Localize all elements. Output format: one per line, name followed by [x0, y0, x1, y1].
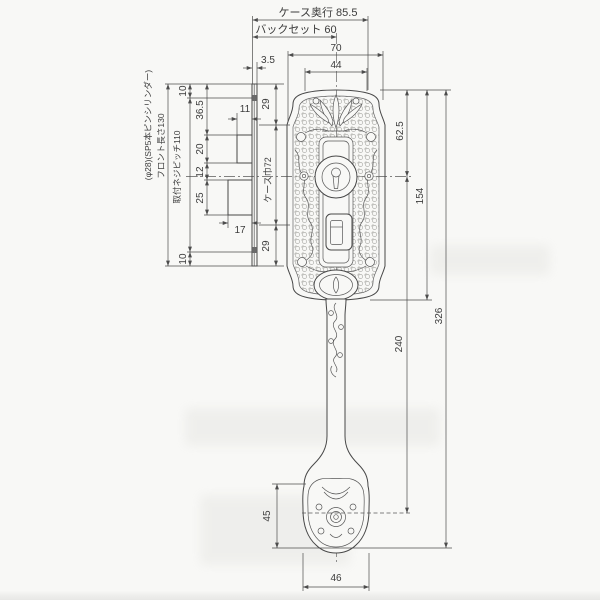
lockset-dimension-drawing: ケース奥行 85.5 バックセット 60 70 44 3.5 11 17 46 … [0, 0, 600, 600]
mounting-screw-right [365, 172, 373, 180]
dead-bolt [228, 180, 252, 215]
cylinder [315, 156, 357, 198]
label-case-width: ケース巾72 [262, 157, 273, 203]
dimension-labels: ケース奥行 85.5 バックセット 60 70 44 3.5 11 17 46 … [143, 5, 445, 584]
label-29-top: 29 [261, 98, 272, 110]
label-backset: バックセット 60 [255, 23, 336, 36]
label-cylinder-note: (φ28)(SP5本ピンシリンダー) [143, 70, 153, 181]
label-326: 326 [434, 307, 445, 324]
faceplate-screw-top [253, 95, 257, 101]
label-62-5: 62.5 [395, 121, 406, 141]
label-240: 240 [394, 335, 405, 352]
faceplate-screw-bottom [253, 247, 257, 253]
label-70: 70 [330, 43, 342, 54]
mounting-screw-left [300, 172, 308, 180]
label-12: 12 [195, 166, 206, 178]
label-case-depth: ケース奥行 85.5 [279, 5, 358, 19]
latch-bolt [237, 135, 252, 163]
label-154: 154 [415, 187, 426, 204]
label-36-5: 36.5 [195, 100, 206, 120]
label-25: 25 [195, 192, 206, 204]
label-20: 20 [195, 143, 206, 155]
label-10-top: 10 [178, 85, 189, 97]
front-view-plate [287, 90, 385, 300]
label-screw-pitch: 取付ネジピッチ110 [172, 130, 182, 203]
label-17: 17 [234, 225, 246, 236]
label-3-5: 3.5 [261, 55, 275, 66]
thumbturn [326, 214, 352, 250]
label-11: 11 [240, 104, 251, 115]
label-46: 46 [330, 573, 342, 584]
label-44: 44 [330, 60, 342, 71]
label-45: 45 [262, 510, 273, 522]
bottom-boss [314, 270, 358, 300]
label-faceplate-length: フロント長さ130 [156, 113, 166, 178]
label-29-bottom: 29 [261, 240, 272, 252]
label-10-bottom: 10 [178, 253, 189, 265]
scanned-technical-drawing: ケース奥行 85.5 バックセット 60 70 44 3.5 11 17 46 … [0, 0, 600, 600]
